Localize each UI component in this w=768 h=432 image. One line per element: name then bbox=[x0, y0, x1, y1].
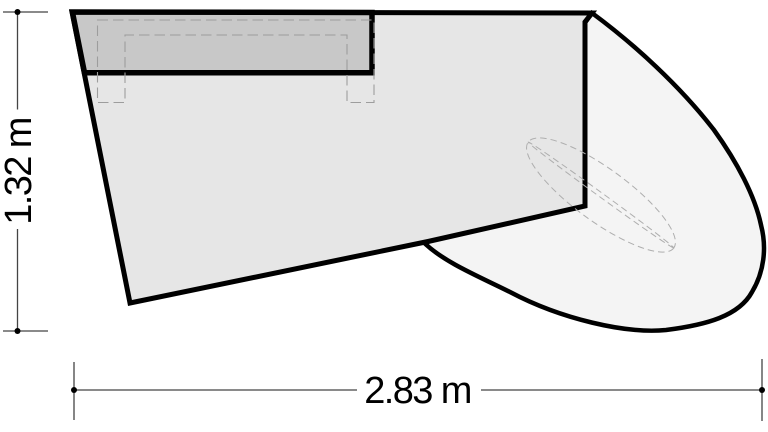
svg-text:1.32 m: 1.32 m bbox=[0, 118, 40, 225]
svg-text:2.83 m: 2.83 m bbox=[364, 370, 471, 412]
